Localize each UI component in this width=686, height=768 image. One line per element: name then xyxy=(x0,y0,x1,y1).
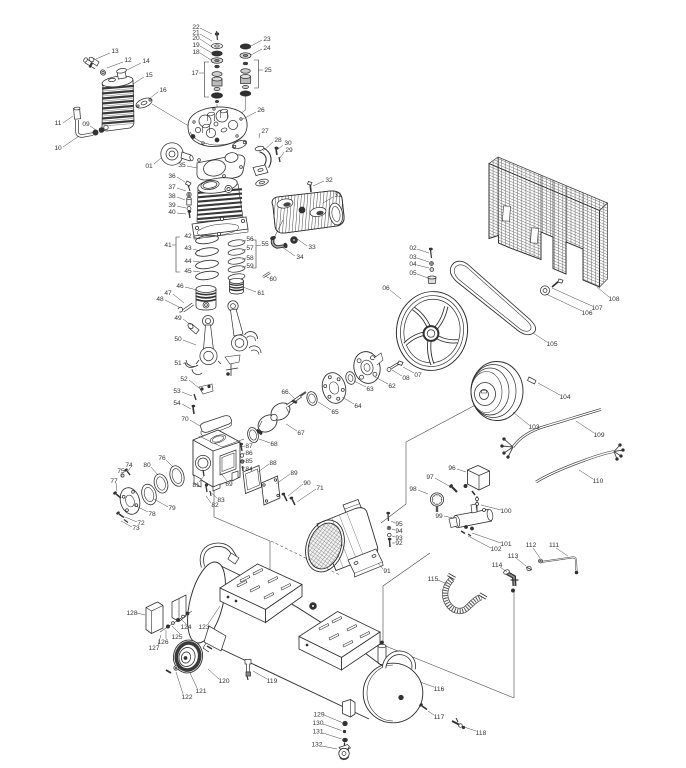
svg-text:73: 73 xyxy=(132,525,140,532)
svg-text:87: 87 xyxy=(245,443,253,450)
svg-text:43: 43 xyxy=(184,245,192,252)
svg-text:89: 89 xyxy=(290,470,298,477)
svg-text:69: 69 xyxy=(225,481,233,488)
svg-text:35: 35 xyxy=(178,162,186,169)
svg-text:18: 18 xyxy=(192,49,200,56)
svg-text:115: 115 xyxy=(428,576,439,583)
svg-text:52: 52 xyxy=(180,376,188,383)
svg-text:62: 62 xyxy=(388,383,396,390)
svg-text:25: 25 xyxy=(264,67,272,74)
svg-text:58: 58 xyxy=(246,255,254,262)
svg-text:120: 120 xyxy=(218,678,229,685)
svg-text:41: 41 xyxy=(164,242,172,249)
svg-text:04: 04 xyxy=(409,261,417,268)
svg-text:108: 108 xyxy=(608,296,619,303)
svg-text:97: 97 xyxy=(426,474,434,481)
svg-text:17: 17 xyxy=(191,70,199,77)
svg-text:79: 79 xyxy=(168,505,176,512)
svg-text:130: 130 xyxy=(312,720,323,727)
svg-text:23: 23 xyxy=(263,36,271,43)
svg-text:54: 54 xyxy=(173,400,181,407)
svg-text:117: 117 xyxy=(434,714,445,721)
svg-text:31: 31 xyxy=(334,192,342,199)
svg-text:129: 129 xyxy=(313,712,324,719)
svg-text:98: 98 xyxy=(409,486,417,493)
svg-text:66: 66 xyxy=(281,389,289,396)
svg-text:09: 09 xyxy=(82,121,90,128)
svg-text:100: 100 xyxy=(500,508,511,515)
svg-text:111: 111 xyxy=(549,542,559,549)
svg-text:125: 125 xyxy=(171,634,182,641)
svg-text:60: 60 xyxy=(269,276,277,283)
svg-text:103: 103 xyxy=(528,424,539,431)
svg-text:24: 24 xyxy=(263,45,271,52)
svg-text:40: 40 xyxy=(168,209,176,216)
svg-text:44: 44 xyxy=(184,258,192,265)
svg-text:48: 48 xyxy=(156,296,164,303)
svg-text:107: 107 xyxy=(591,305,602,312)
svg-text:94: 94 xyxy=(395,528,403,535)
svg-text:85: 85 xyxy=(245,458,253,465)
svg-text:90: 90 xyxy=(303,480,311,487)
svg-text:95: 95 xyxy=(395,521,403,528)
svg-text:64: 64 xyxy=(354,403,362,410)
svg-text:78: 78 xyxy=(148,511,156,518)
svg-text:30: 30 xyxy=(284,140,292,147)
svg-text:12: 12 xyxy=(124,57,132,64)
svg-text:32: 32 xyxy=(325,177,333,184)
svg-text:34: 34 xyxy=(296,254,304,261)
svg-text:63: 63 xyxy=(366,386,374,393)
svg-text:55: 55 xyxy=(261,241,269,248)
svg-text:53: 53 xyxy=(173,388,181,395)
svg-text:119: 119 xyxy=(267,678,278,685)
svg-text:105: 105 xyxy=(546,341,557,348)
svg-text:65: 65 xyxy=(331,409,339,416)
svg-text:110: 110 xyxy=(593,478,604,485)
svg-text:39: 39 xyxy=(168,202,176,209)
svg-text:70: 70 xyxy=(181,416,189,423)
svg-text:29: 29 xyxy=(285,147,293,154)
svg-text:61: 61 xyxy=(257,290,265,297)
svg-text:42: 42 xyxy=(184,233,192,240)
svg-text:46: 46 xyxy=(176,283,184,290)
svg-text:27: 27 xyxy=(261,128,269,135)
svg-text:07: 07 xyxy=(414,372,422,379)
svg-text:82: 82 xyxy=(211,502,219,509)
svg-text:99: 99 xyxy=(435,513,443,520)
svg-text:56: 56 xyxy=(246,236,254,243)
svg-text:76: 76 xyxy=(158,455,166,462)
svg-text:131: 131 xyxy=(312,729,323,736)
svg-text:109: 109 xyxy=(593,432,604,439)
svg-text:06: 06 xyxy=(382,285,390,292)
svg-text:86: 86 xyxy=(245,450,253,457)
svg-text:11: 11 xyxy=(55,120,62,127)
svg-text:102: 102 xyxy=(490,546,501,553)
svg-text:121: 121 xyxy=(195,688,206,695)
svg-text:28: 28 xyxy=(274,137,282,144)
svg-text:13: 13 xyxy=(111,48,119,55)
svg-text:14: 14 xyxy=(142,58,150,65)
svg-text:08: 08 xyxy=(402,375,410,382)
svg-text:127: 127 xyxy=(148,645,159,652)
svg-text:101: 101 xyxy=(500,541,511,548)
svg-text:02: 02 xyxy=(409,245,417,252)
svg-text:84: 84 xyxy=(245,466,253,473)
svg-text:47: 47 xyxy=(164,290,172,297)
svg-text:50: 50 xyxy=(174,336,182,343)
svg-text:51: 51 xyxy=(174,360,182,367)
svg-text:36: 36 xyxy=(168,173,176,180)
svg-text:49: 49 xyxy=(174,315,182,322)
svg-text:71: 71 xyxy=(316,485,324,492)
svg-text:19: 19 xyxy=(192,42,200,49)
svg-text:68: 68 xyxy=(270,441,278,448)
svg-text:91: 91 xyxy=(383,568,391,575)
svg-text:45: 45 xyxy=(184,268,192,275)
svg-text:112: 112 xyxy=(526,542,537,549)
svg-text:124: 124 xyxy=(180,624,191,631)
svg-text:75: 75 xyxy=(117,468,125,475)
svg-text:77: 77 xyxy=(110,478,118,485)
svg-text:114: 114 xyxy=(492,562,503,569)
svg-text:26: 26 xyxy=(257,107,265,114)
svg-text:37: 37 xyxy=(168,184,176,191)
svg-text:01: 01 xyxy=(145,163,153,170)
svg-text:03: 03 xyxy=(409,254,417,261)
svg-text:20: 20 xyxy=(192,35,200,42)
svg-text:38: 38 xyxy=(168,193,176,200)
svg-text:80: 80 xyxy=(143,462,151,469)
svg-text:96: 96 xyxy=(448,465,456,472)
svg-text:122: 122 xyxy=(181,694,192,701)
svg-text:106: 106 xyxy=(581,310,592,317)
svg-text:104: 104 xyxy=(559,394,570,401)
svg-text:81: 81 xyxy=(192,482,200,489)
svg-text:15: 15 xyxy=(145,72,153,79)
svg-text:59: 59 xyxy=(246,263,254,270)
svg-text:05: 05 xyxy=(409,270,417,277)
svg-text:116: 116 xyxy=(434,686,445,693)
svg-text:16: 16 xyxy=(159,87,167,94)
svg-text:132: 132 xyxy=(311,742,322,749)
svg-text:128: 128 xyxy=(126,610,137,617)
svg-text:57: 57 xyxy=(246,245,254,252)
svg-text:74: 74 xyxy=(125,462,133,469)
svg-text:33: 33 xyxy=(308,244,316,251)
svg-text:10: 10 xyxy=(54,145,62,152)
svg-text:123: 123 xyxy=(198,624,209,631)
svg-text:113: 113 xyxy=(508,553,519,560)
svg-text:92: 92 xyxy=(395,540,403,547)
svg-text:88: 88 xyxy=(269,460,277,467)
svg-text:118: 118 xyxy=(476,730,487,737)
svg-text:67: 67 xyxy=(297,430,305,437)
